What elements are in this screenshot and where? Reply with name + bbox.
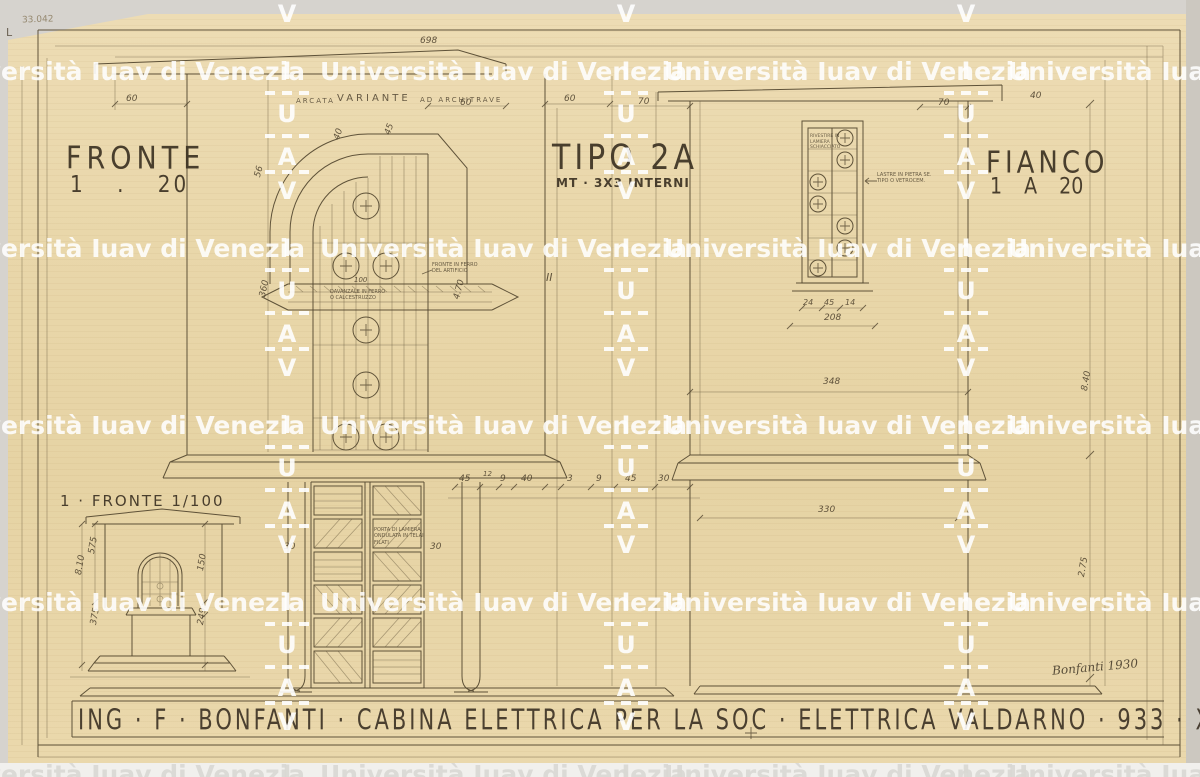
watermark-letter: I <box>946 234 986 262</box>
watermark-letter: V <box>946 177 986 205</box>
watermark-dash <box>604 665 648 669</box>
watermark-letter: V <box>946 708 986 736</box>
watermark-text: Università Iuav di Venezia <box>0 411 305 440</box>
annotation-label: RIVESTIRE IN LAMIERA SCHIACCIATO <box>810 134 840 151</box>
dimension-label: 9 <box>596 474 602 484</box>
dimension-label: 12 <box>483 470 492 478</box>
watermark-letter: A <box>267 674 307 702</box>
dimension-label: 30 <box>658 474 669 484</box>
watermark-letter: A <box>946 497 986 525</box>
watermark-letter: V <box>606 708 646 736</box>
watermark-letter: A <box>946 674 986 702</box>
watermark-letter: U <box>267 277 307 305</box>
watermark-dash <box>944 665 988 669</box>
watermark-dash <box>604 170 648 174</box>
watermark-text: Università Iuav di Venezia <box>1008 760 1200 777</box>
watermark-letter: I <box>267 234 307 262</box>
watermark-letter: V <box>606 177 646 205</box>
watermark-letter: A <box>606 497 646 525</box>
watermark-dash <box>944 524 988 528</box>
dimension-label: 348 <box>823 377 840 387</box>
watermark-letter: I <box>267 760 307 777</box>
watermark-dash <box>265 347 309 351</box>
annotation-label: LASTRE IN PIETRA SE. TIPO O VETROCEM. <box>877 172 931 185</box>
watermark-letter: V <box>946 0 986 28</box>
watermark-letter: A <box>946 320 986 348</box>
watermark-dash <box>265 311 309 315</box>
watermark-dash <box>604 134 648 138</box>
watermark-letter: V <box>267 0 307 28</box>
watermark-dash <box>604 701 648 705</box>
watermark-dash <box>265 665 309 669</box>
watermark-letter: I <box>267 57 307 85</box>
watermark-letter: U <box>267 100 307 128</box>
watermark-letter: A <box>267 143 307 171</box>
watermark-dash <box>944 134 988 138</box>
dimension-label: 45 <box>824 298 834 307</box>
watermark-dash <box>604 347 648 351</box>
dimension-label: 698 <box>420 36 437 46</box>
watermark-dash <box>265 622 309 626</box>
watermark-letter: A <box>946 143 986 171</box>
dimension-label: 14 <box>845 298 855 307</box>
archive-number: 33.042 <box>22 14 54 25</box>
watermark-letter: I <box>946 57 986 85</box>
watermark-letter: I <box>606 57 646 85</box>
dimension-label: 3 <box>567 474 573 484</box>
watermark-dash <box>265 488 309 492</box>
watermark-text: Università Iuav di Venezia <box>1008 57 1200 86</box>
annotation-label: AD ARCHITRAVE <box>420 96 502 105</box>
watermark-dash <box>265 134 309 138</box>
watermark-letter: U <box>606 631 646 659</box>
watermark-dash <box>604 622 648 626</box>
watermark-letter: A <box>267 320 307 348</box>
watermark-text: Università Iuav di Venezia <box>0 588 305 617</box>
dimension-label: 9 <box>500 474 506 484</box>
watermark-dash <box>944 445 988 449</box>
watermark-letter: U <box>606 454 646 482</box>
watermark-letter: A <box>606 143 646 171</box>
annotation-label: DAVANZALE IN FERRO O CALCESTRUZZO <box>330 289 385 302</box>
dimension-label: 208 <box>824 313 841 323</box>
dimension-label: 40 <box>521 474 532 484</box>
watermark-letter: V <box>606 354 646 382</box>
dimension-label: 330 <box>818 505 835 515</box>
dimension-label: 60 <box>564 94 575 104</box>
watermark-text: Università Iuav di Venezia <box>0 234 305 263</box>
watermark-dash <box>265 701 309 705</box>
watermark-letter: V <box>946 531 986 559</box>
watermark-dash <box>265 91 309 95</box>
annotation-label: FRONTE IN FERRO DEL ARTIFICIO <box>432 262 478 275</box>
watermark-dash <box>944 622 988 626</box>
watermark-text: Università Iuav di Venezia <box>1008 588 1200 617</box>
watermark-letter: A <box>606 320 646 348</box>
dimension-label: 24 <box>803 298 813 307</box>
watermark-dash <box>944 91 988 95</box>
watermark-text: Università Iuav di Venezia <box>0 57 305 86</box>
watermark-dash <box>944 701 988 705</box>
watermark-letter: A <box>606 674 646 702</box>
watermark-letter: U <box>267 454 307 482</box>
fronte-scale: 1 . 20 <box>70 170 189 198</box>
watermark-letter: I <box>606 411 646 439</box>
watermark-dash <box>944 347 988 351</box>
watermark-text: Università Iuav di Venezia <box>1008 234 1200 263</box>
watermark-dash <box>604 524 648 528</box>
scanned-drawing-sheet: FRONTE 1 . 20 TIPO 2A MT · 3X3 INTERNI F… <box>0 0 1200 777</box>
watermark-text: Università Iuav di Venezia <box>1008 411 1200 440</box>
watermark-letter: V <box>606 531 646 559</box>
watermark-dash <box>944 311 988 315</box>
watermark-dash <box>604 488 648 492</box>
watermark-dash <box>265 170 309 174</box>
watermark-letter: U <box>946 100 986 128</box>
watermark-letter: U <box>606 277 646 305</box>
watermark-dash <box>604 311 648 315</box>
watermark-letter: V <box>267 708 307 736</box>
watermark-letter: I <box>606 234 646 262</box>
watermark-letter: V <box>267 177 307 205</box>
watermark-dash <box>265 445 309 449</box>
watermark-dash <box>944 268 988 272</box>
watermark-letter: V <box>606 0 646 28</box>
watermark-letter: A <box>267 497 307 525</box>
watermark-letter: I <box>946 588 986 616</box>
watermark-letter: I <box>267 588 307 616</box>
watermark-text: Università Iuav di Venezia <box>0 760 305 777</box>
watermark-letter: I <box>267 411 307 439</box>
watermark-letter: U <box>946 454 986 482</box>
dimension-label: 60 <box>126 94 137 104</box>
fianco-scale: 1 A 20 <box>990 174 1083 199</box>
dimension-label: II <box>546 271 553 284</box>
watermark-letter: I <box>946 411 986 439</box>
watermark-dash <box>604 268 648 272</box>
small-elevation-title: 1 · FRONTE 1/100 <box>60 492 225 510</box>
watermark-letter: V <box>946 354 986 382</box>
watermark-letter: V <box>267 531 307 559</box>
dimension-label: 100 <box>354 276 367 284</box>
dimension-label: 45 <box>459 474 470 484</box>
watermark-letter: U <box>946 631 986 659</box>
watermark-letter: U <box>946 277 986 305</box>
watermark-dash <box>604 91 648 95</box>
watermark-letter: U <box>606 100 646 128</box>
corner-mark: L <box>6 26 12 39</box>
watermark-dash <box>944 488 988 492</box>
watermark-dash <box>604 445 648 449</box>
watermark-letter: I <box>606 588 646 616</box>
annotation-label: VARIANTE <box>337 93 411 106</box>
drawing-linework <box>0 0 1200 777</box>
watermark-letter: V <box>267 354 307 382</box>
watermark-letter: U <box>267 631 307 659</box>
annotation-label: PORTA DI LAMIERA ONDULATA IN TELAI FILAT… <box>374 527 424 546</box>
watermark-dash <box>944 170 988 174</box>
watermark-dash <box>265 268 309 272</box>
watermark-dash <box>265 524 309 528</box>
dimension-label: 30 <box>430 542 441 552</box>
dimension-label: 40 <box>1030 91 1041 101</box>
watermark-letter: I <box>946 760 986 777</box>
watermark-letter: I <box>606 760 646 777</box>
